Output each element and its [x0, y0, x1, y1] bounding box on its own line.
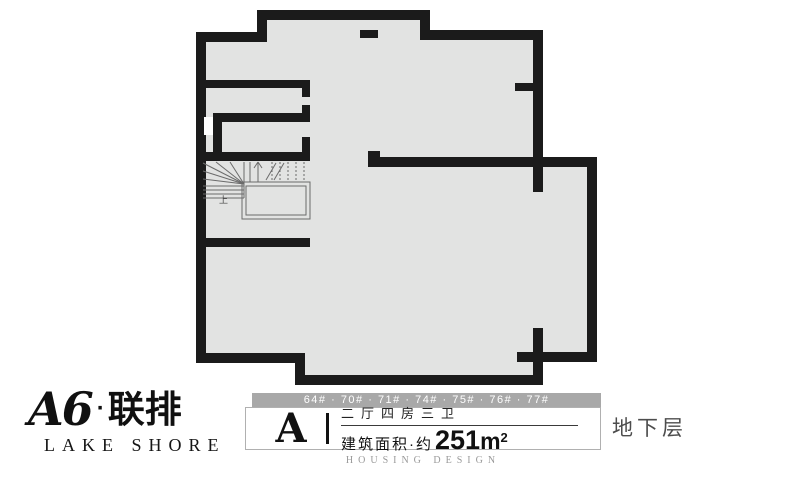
divider-bar [326, 413, 329, 444]
unit-type-letter: A [258, 411, 324, 447]
wall-segment [533, 167, 543, 192]
design-caption: HOUSING DESIGN [245, 455, 601, 466]
brand-title-latin: A6 [28, 382, 92, 436]
brand-subtitle: LAKE SHORE [28, 435, 250, 456]
wall-segment [515, 83, 533, 91]
wall-segment [302, 105, 310, 122]
floor-area [368, 162, 592, 358]
brand-title: A6·联排 [28, 386, 250, 432]
brand-title-separator: · [97, 395, 105, 422]
area-value: 251 [435, 427, 480, 454]
wall-segment [295, 375, 543, 385]
wall-segment [196, 353, 305, 363]
wall-segment [533, 30, 543, 167]
light-well [204, 117, 213, 135]
brand-logo: A6·联排 LAKE SHORE [28, 386, 250, 456]
staircase [200, 158, 312, 242]
room-layout-text: 二厅四房三卫 [341, 403, 578, 426]
area-unit: m2 [480, 430, 508, 453]
unit-info-box: A 二厅四房三卫 建筑面积·约 251 m2 [245, 407, 601, 450]
wall-segment [587, 157, 597, 362]
wall-segment [420, 30, 543, 40]
floor-level-label: 地下层 [612, 412, 687, 442]
wall-segment [368, 157, 597, 167]
wall-segment [360, 30, 378, 38]
wall-segment [543, 352, 597, 362]
wall-segment [302, 80, 310, 97]
floorplan-page: 上 A6·联排 LAKE SHORE 64# · 70# · 71# · 74#… [0, 0, 800, 480]
wall-segment [203, 80, 310, 88]
area-line: 建筑面积·约 251 m2 [341, 427, 578, 454]
wall-segment [257, 10, 430, 20]
unit-specs: 二厅四房三卫 建筑面积·约 251 m2 [341, 403, 578, 454]
stair-up-label: 上 [219, 196, 228, 205]
wall-segment [368, 151, 380, 158]
brand-title-cn: 联排 [108, 389, 182, 430]
wall-segment [213, 113, 310, 122]
area-prefix: 建筑面积·约 [341, 433, 433, 454]
wall-segment [517, 352, 533, 362]
